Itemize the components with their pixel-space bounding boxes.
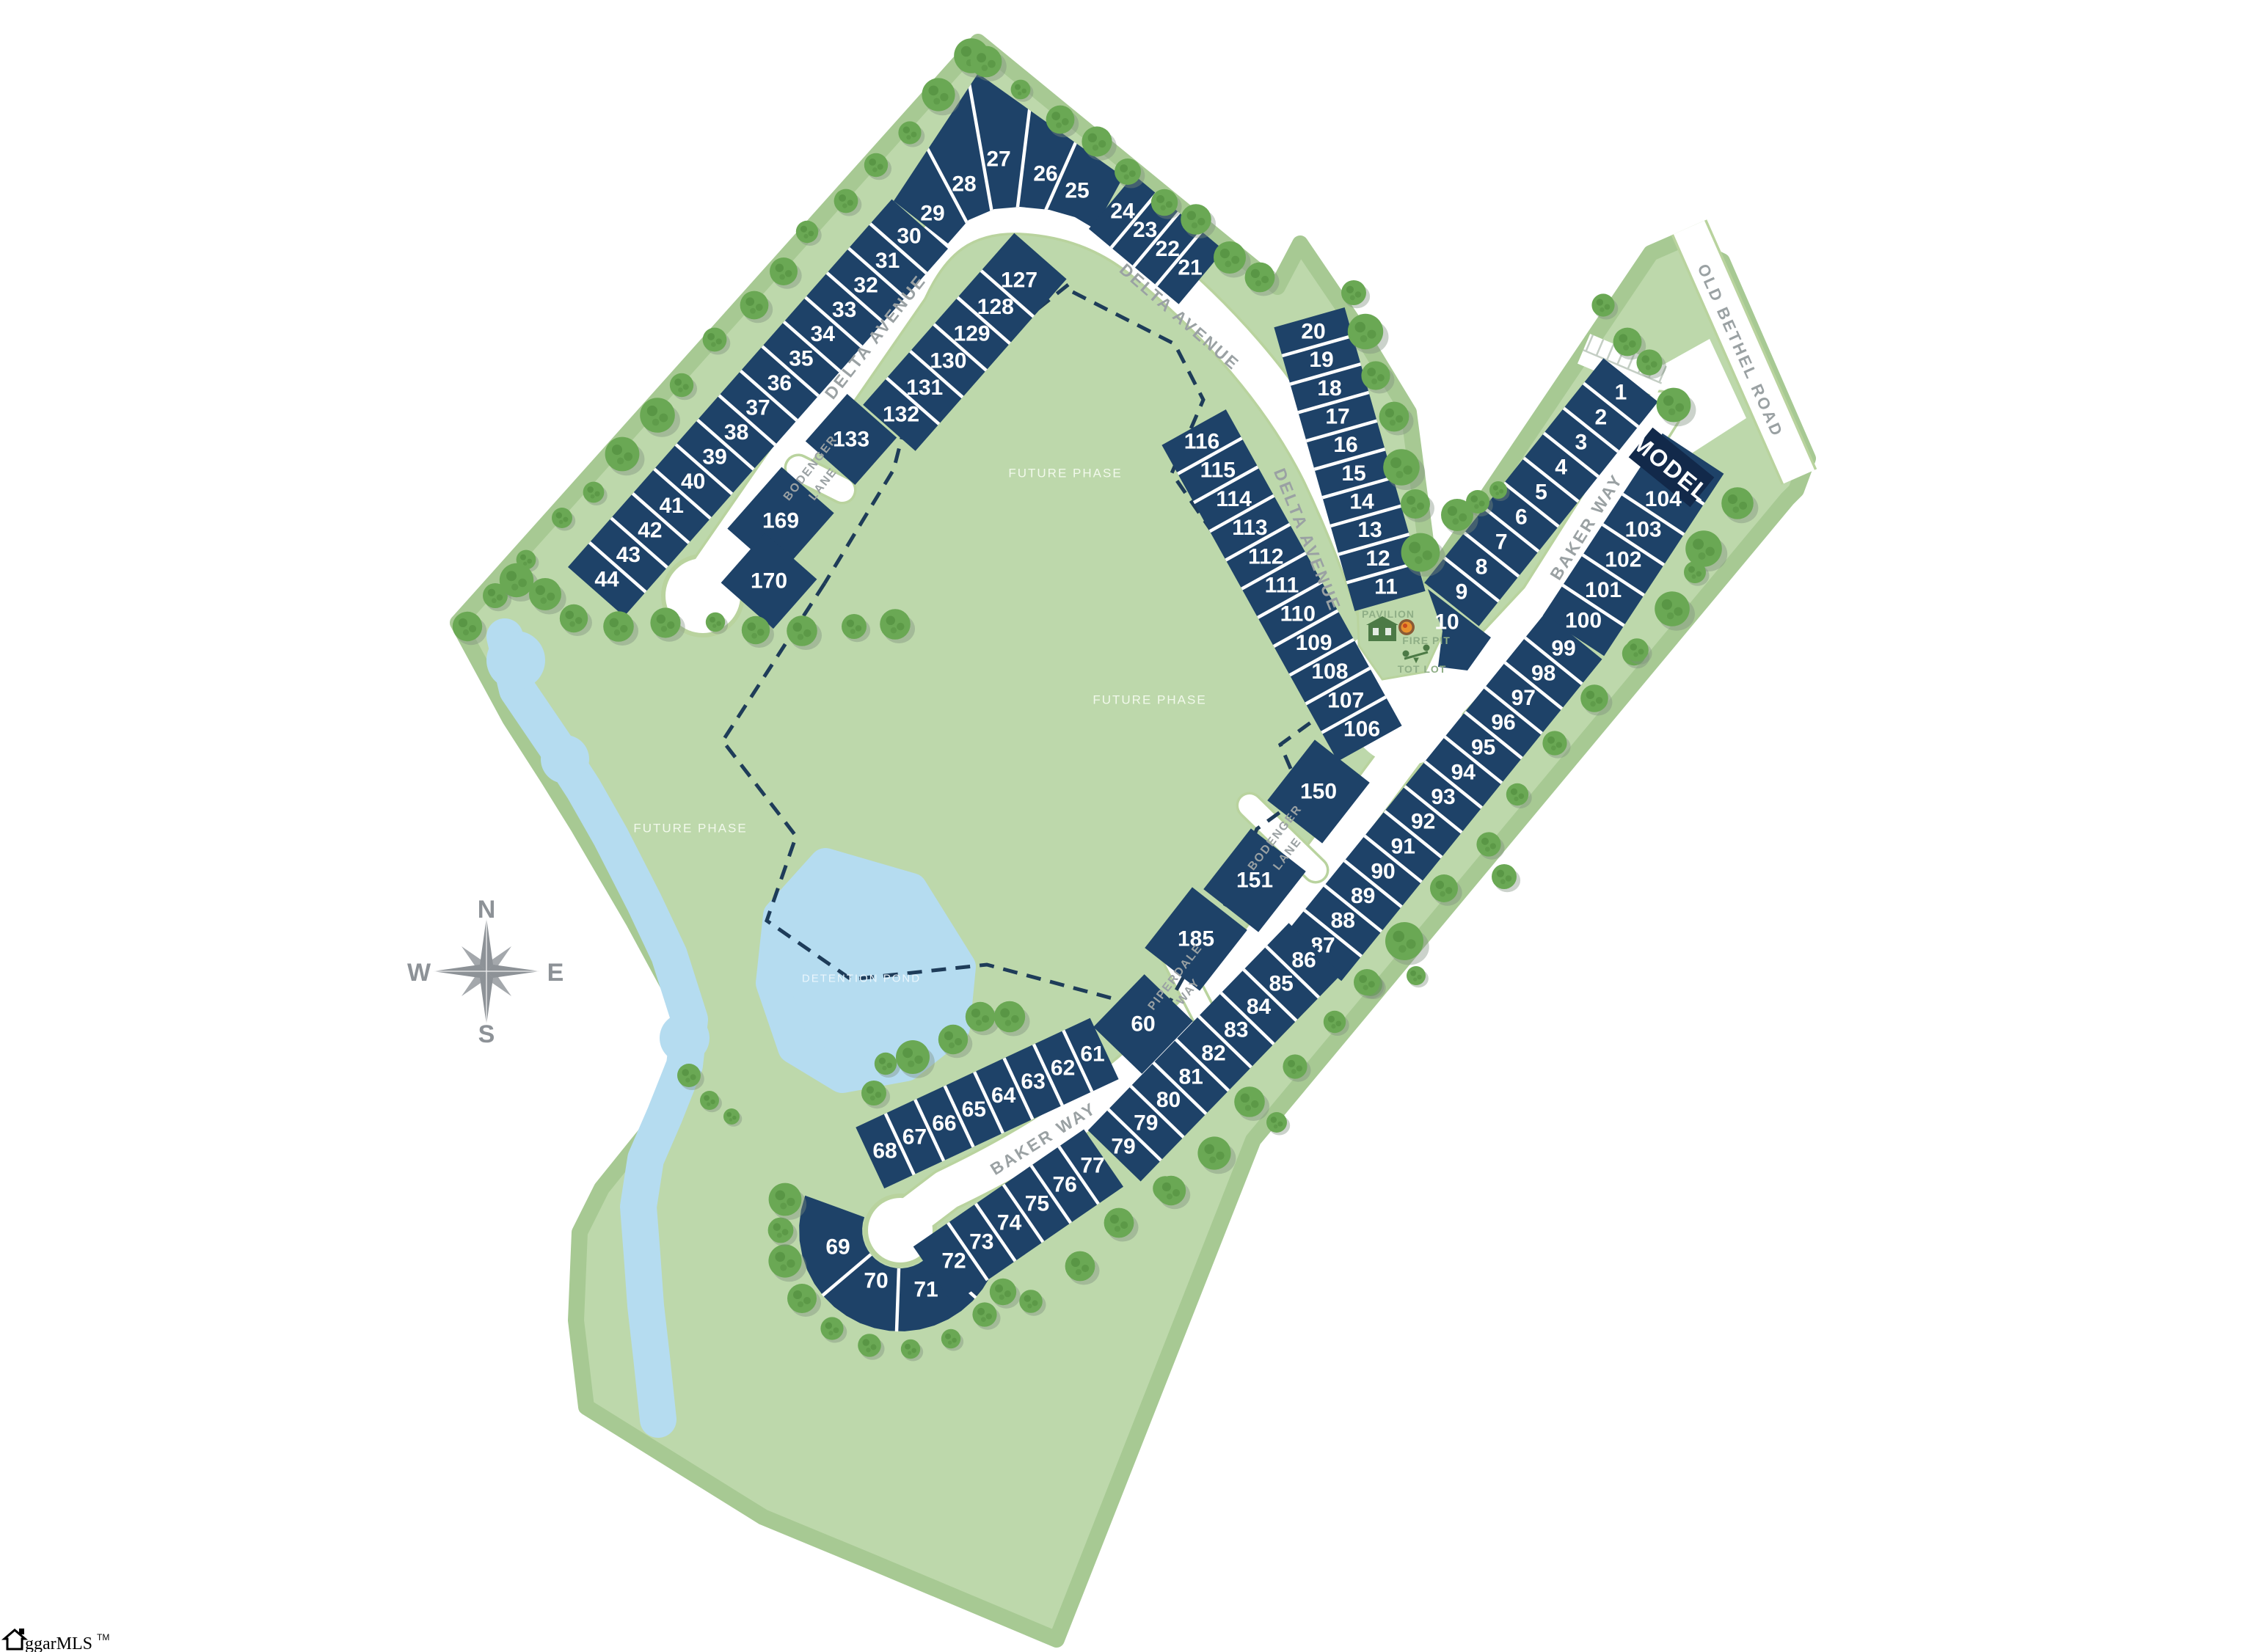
svg-text:11: 11	[1374, 575, 1398, 599]
svg-text:21: 21	[1178, 256, 1202, 280]
svg-text:W: W	[407, 959, 431, 987]
svg-text:35: 35	[789, 347, 813, 371]
svg-text:7: 7	[1495, 530, 1508, 555]
svg-text:FUTURE PHASE: FUTURE PHASE	[1093, 693, 1206, 707]
svg-text:FUTURE PHASE: FUTURE PHASE	[1008, 467, 1122, 480]
svg-text:132: 132	[883, 403, 919, 427]
svg-text:25: 25	[1065, 179, 1089, 203]
svg-text:86: 86	[1291, 949, 1316, 973]
svg-text:33: 33	[832, 298, 856, 322]
svg-text:24: 24	[1110, 200, 1135, 224]
svg-text:27: 27	[986, 147, 1010, 172]
svg-text:N: N	[478, 896, 496, 924]
svg-text:101: 101	[1585, 578, 1622, 602]
svg-text:69: 69	[825, 1235, 850, 1260]
svg-text:99: 99	[1551, 637, 1575, 661]
svg-text:TOT LOT: TOT LOT	[1398, 663, 1447, 675]
svg-text:17: 17	[1325, 405, 1349, 429]
svg-text:79: 79	[1111, 1135, 1135, 1159]
svg-text:38: 38	[724, 420, 748, 445]
svg-text:31: 31	[875, 249, 900, 273]
svg-text:DETENTION POND: DETENTION POND	[802, 973, 921, 985]
svg-text:115: 115	[1200, 458, 1236, 483]
svg-text:89: 89	[1351, 884, 1375, 908]
svg-text:16: 16	[1333, 433, 1357, 457]
svg-text:83: 83	[1224, 1018, 1248, 1042]
svg-text:62: 62	[1051, 1056, 1075, 1080]
svg-text:108: 108	[1311, 659, 1348, 684]
svg-text:41: 41	[660, 494, 684, 518]
svg-text:81: 81	[1179, 1064, 1203, 1089]
svg-text:42: 42	[638, 519, 662, 543]
svg-text:61: 61	[1080, 1042, 1104, 1067]
svg-text:39: 39	[702, 445, 726, 469]
svg-text:36: 36	[767, 371, 792, 395]
svg-text:102: 102	[1605, 548, 1641, 572]
svg-text:84: 84	[1247, 995, 1272, 1019]
svg-text:170: 170	[751, 569, 787, 593]
svg-text:90: 90	[1371, 859, 1395, 883]
svg-text:128: 128	[977, 295, 1014, 319]
svg-text:PAVILION: PAVILION	[1362, 608, 1415, 620]
svg-text:74: 74	[997, 1211, 1022, 1235]
svg-text:79: 79	[1134, 1111, 1158, 1136]
svg-text:110: 110	[1280, 602, 1316, 626]
svg-text:95: 95	[1471, 736, 1495, 760]
svg-text:75: 75	[1025, 1192, 1049, 1216]
svg-text:104: 104	[1645, 487, 1682, 511]
svg-text:19: 19	[1309, 348, 1333, 372]
svg-text:71: 71	[913, 1278, 938, 1302]
svg-text:65: 65	[962, 1097, 986, 1122]
svg-text:3: 3	[1575, 431, 1587, 455]
svg-text:116: 116	[1184, 430, 1219, 454]
svg-text:92: 92	[1411, 810, 1435, 834]
svg-text:14: 14	[1349, 490, 1374, 514]
svg-text:150: 150	[1300, 780, 1337, 804]
svg-text:TM: TM	[97, 1632, 109, 1642]
svg-text:129: 129	[954, 322, 991, 346]
svg-text:130: 130	[930, 348, 966, 373]
svg-text:66: 66	[932, 1111, 956, 1136]
svg-text:40: 40	[681, 469, 705, 494]
svg-text:94: 94	[1451, 760, 1476, 784]
svg-text:20: 20	[1301, 320, 1325, 344]
svg-text:109: 109	[1296, 631, 1332, 655]
svg-text:72: 72	[941, 1249, 966, 1273]
svg-text:111: 111	[1265, 574, 1299, 598]
svg-text:63: 63	[1021, 1070, 1045, 1094]
svg-text:26: 26	[1033, 162, 1057, 186]
svg-text:91: 91	[1391, 835, 1415, 859]
svg-text:82: 82	[1201, 1042, 1225, 1066]
svg-text:107: 107	[1327, 688, 1364, 712]
svg-text:29: 29	[920, 202, 944, 226]
svg-text:112: 112	[1248, 544, 1283, 569]
svg-text:34: 34	[811, 322, 836, 346]
svg-text:100: 100	[1565, 609, 1602, 633]
svg-text:44: 44	[594, 568, 619, 592]
svg-text:43: 43	[616, 543, 641, 567]
svg-text:97: 97	[1511, 686, 1536, 710]
svg-text:113: 113	[1232, 516, 1267, 540]
svg-text:10: 10	[1434, 610, 1459, 635]
svg-text:FUTURE PHASE: FUTURE PHASE	[633, 822, 747, 836]
svg-text:4: 4	[1555, 456, 1567, 480]
svg-text:12: 12	[1365, 547, 1390, 571]
svg-text:9: 9	[1456, 580, 1468, 604]
svg-text:70: 70	[864, 1269, 888, 1293]
svg-text:15: 15	[1341, 461, 1365, 486]
svg-text:93: 93	[1431, 785, 1455, 809]
svg-text:ggarMLS: ggarMLS	[25, 1634, 92, 1652]
svg-text:68: 68	[872, 1139, 897, 1163]
svg-text:88: 88	[1331, 909, 1355, 933]
svg-text:76: 76	[1053, 1173, 1077, 1197]
svg-text:98: 98	[1531, 661, 1555, 685]
svg-text:106: 106	[1343, 717, 1380, 742]
svg-text:114: 114	[1216, 487, 1252, 511]
svg-text:37: 37	[745, 396, 770, 420]
svg-text:103: 103	[1625, 517, 1662, 541]
svg-text:22: 22	[1156, 237, 1180, 261]
svg-text:S: S	[478, 1020, 495, 1048]
svg-text:80: 80	[1156, 1088, 1181, 1112]
svg-text:64: 64	[991, 1083, 1016, 1108]
svg-text:23: 23	[1133, 218, 1157, 242]
svg-text:131: 131	[906, 376, 943, 400]
svg-text:85: 85	[1269, 971, 1294, 995]
svg-text:60: 60	[1131, 1012, 1155, 1037]
svg-text:2: 2	[1595, 406, 1608, 430]
svg-text:73: 73	[969, 1230, 993, 1254]
svg-text:18: 18	[1317, 376, 1341, 401]
svg-text:169: 169	[762, 509, 799, 533]
svg-text:127: 127	[1001, 268, 1037, 293]
svg-text:5: 5	[1535, 480, 1547, 505]
svg-text:32: 32	[853, 273, 878, 297]
svg-text:30: 30	[897, 224, 921, 249]
svg-text:67: 67	[902, 1125, 927, 1150]
svg-text:8: 8	[1476, 555, 1488, 580]
svg-text:1: 1	[1615, 381, 1627, 405]
svg-text:28: 28	[952, 172, 976, 197]
svg-text:6: 6	[1515, 505, 1528, 530]
svg-text:96: 96	[1491, 711, 1515, 735]
svg-text:13: 13	[1357, 518, 1382, 542]
svg-text:E: E	[547, 959, 564, 987]
svg-text:77: 77	[1080, 1154, 1104, 1178]
